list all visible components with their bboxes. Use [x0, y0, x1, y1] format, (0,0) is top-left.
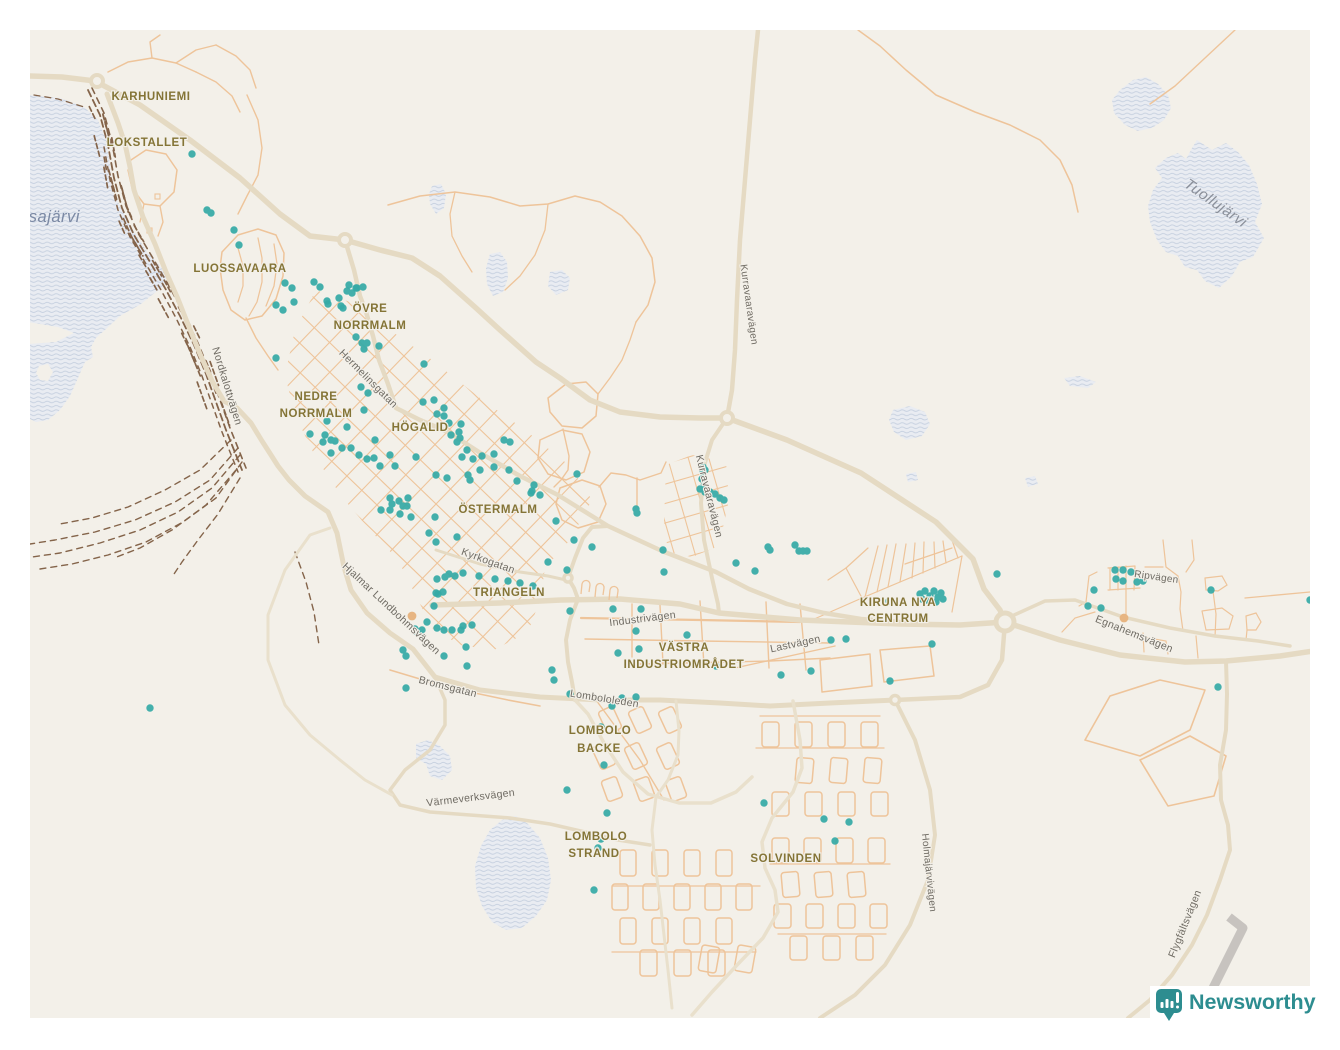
svg-text:TRIANGELN: TRIANGELN — [473, 587, 545, 599]
svg-text:LOMBOLO: LOMBOLO — [569, 725, 632, 737]
svg-text:VÄSTRA: VÄSTRA — [659, 641, 710, 654]
svg-text:NORRMALM: NORRMALM — [334, 320, 407, 332]
svg-text:NORRMALM: NORRMALM — [280, 408, 353, 420]
svg-text:ÖVRE: ÖVRE — [353, 302, 388, 315]
svg-text:LOMBOLO: LOMBOLO — [565, 831, 628, 843]
svg-text:HÖGALID: HÖGALID — [392, 421, 449, 434]
svg-text:KIRUNA NYA: KIRUNA NYA — [860, 597, 936, 609]
svg-text:NEDRE: NEDRE — [294, 391, 337, 403]
svg-text:STRAND: STRAND — [568, 848, 619, 860]
svg-text:KARHUNIEMI: KARHUNIEMI — [112, 91, 191, 103]
svg-text:Newsworthy: Newsworthy — [1189, 990, 1316, 1014]
svg-text:LUOSSAVAARA: LUOSSAVAARA — [193, 263, 286, 275]
svg-text:SOLVINDEN: SOLVINDEN — [750, 853, 821, 865]
svg-text:BACKE: BACKE — [577, 743, 621, 755]
svg-text:ÖSTERMALM: ÖSTERMALM — [458, 503, 537, 516]
svg-text:LOKSTALLET: LOKSTALLET — [107, 137, 188, 149]
svg-text:INDUSTRIOMRÅDET: INDUSTRIOMRÅDET — [624, 658, 745, 671]
svg-text:CENTRUM: CENTRUM — [867, 613, 928, 625]
